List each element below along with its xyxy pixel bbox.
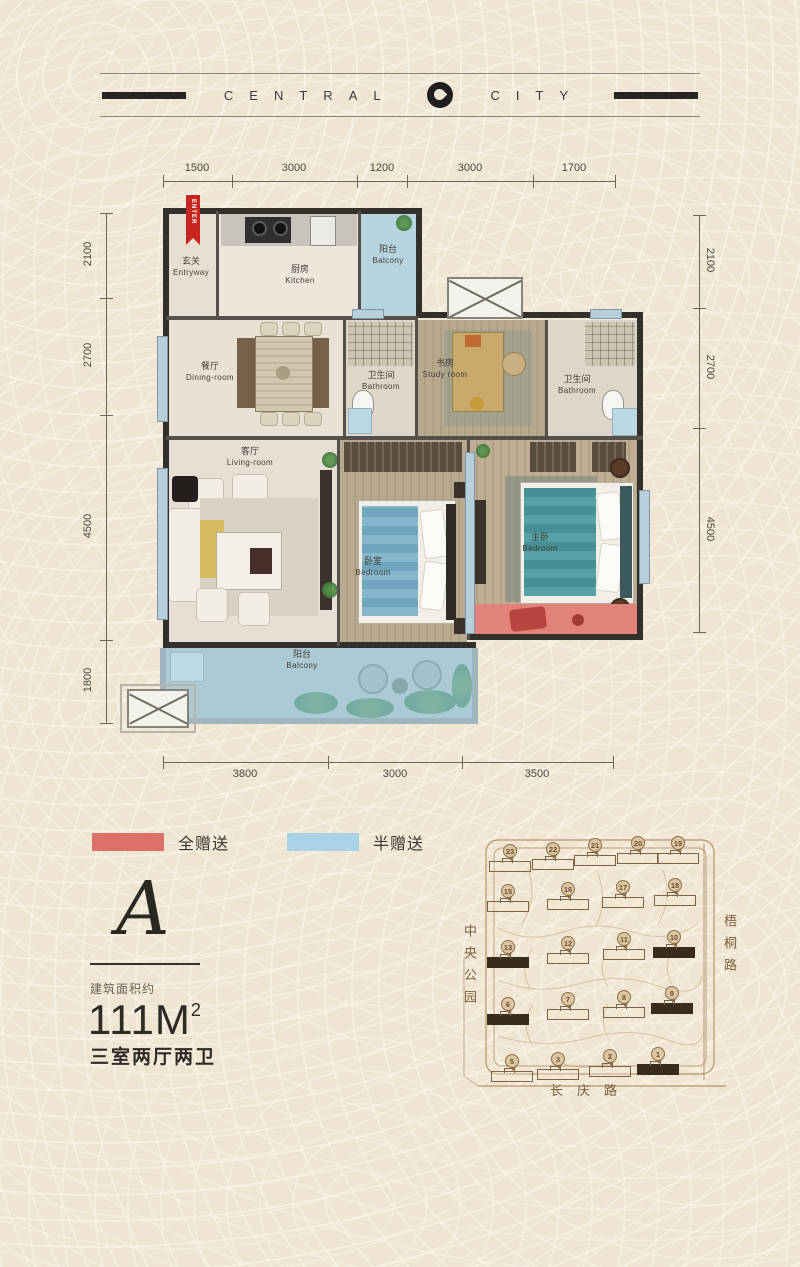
brand-word-right: CITY	[482, 88, 584, 103]
brand-header: CENTRAL CITY	[100, 73, 700, 117]
building-footprint-1	[637, 1064, 679, 1075]
building-footprint-16	[547, 899, 589, 910]
dimension-line-top	[163, 181, 615, 182]
plan-shape	[352, 309, 384, 319]
plan-shape	[252, 221, 267, 236]
dimension-tick	[100, 415, 113, 416]
building-marker-23: 23	[503, 844, 517, 858]
plan-shape	[545, 320, 548, 440]
plan-shape	[610, 458, 630, 478]
plan-shape	[470, 634, 643, 640]
plan-shape	[216, 532, 282, 590]
brand-word-left: CENTRAL	[216, 88, 397, 103]
header-bar-right	[614, 92, 698, 99]
building-marker-11: 11	[617, 932, 631, 946]
plan-shape	[415, 320, 418, 440]
plan-shape	[416, 208, 422, 318]
legend-label-half-gift: 半赠送	[373, 830, 424, 854]
plan-shape	[157, 468, 168, 620]
building-footprint-23	[489, 861, 531, 872]
dimension-tick	[693, 428, 706, 429]
dimension-label-left: 2700	[82, 325, 94, 385]
plan-shape	[273, 221, 288, 236]
plan-shape	[585, 322, 635, 366]
plan-shape	[465, 335, 481, 347]
dimension-tick	[100, 723, 113, 724]
plan-shape	[337, 440, 340, 646]
leaf-icon	[431, 87, 447, 103]
dimension-tick	[693, 632, 706, 633]
dimension-label-right: 2100	[704, 230, 716, 290]
legend-label-full-gift: 全赠送	[178, 830, 229, 854]
plan-shape	[310, 216, 336, 246]
plan-shape	[344, 442, 462, 472]
dimension-tick	[407, 175, 408, 188]
plan-shape	[238, 592, 270, 626]
plan-shape	[282, 412, 300, 426]
plan-shape	[474, 500, 486, 584]
building-marker-12: 12	[561, 936, 575, 950]
building-marker-20: 20	[631, 836, 645, 850]
building-footprint-3	[537, 1069, 579, 1080]
header-bar-left	[102, 92, 186, 99]
room-label-entryway: 玄关Entryway	[173, 256, 209, 278]
plan-shape	[637, 312, 643, 640]
dimension-tick	[100, 298, 113, 299]
bottom-road-label: 长庆路	[550, 1080, 631, 1099]
dimension-line-bottom	[163, 762, 613, 763]
building-marker-8: 8	[617, 990, 631, 1004]
dimension-tick	[328, 756, 329, 769]
dimension-label-top: 3000	[264, 162, 324, 174]
dimension-label-right: 4500	[704, 499, 716, 559]
building-footprint-22	[532, 859, 574, 870]
dimension-label-top: 1200	[352, 162, 412, 174]
building-marker-16: 16	[561, 882, 575, 896]
building-footprint-2	[589, 1066, 631, 1077]
dimension-label-right: 2700	[704, 337, 716, 397]
plan-shape	[572, 614, 584, 626]
building-marker-3: 3	[551, 1052, 565, 1066]
room-label-dining-room: 餐厅Dining-room	[186, 361, 234, 383]
plan-shape	[612, 408, 638, 436]
plan-shape	[348, 322, 413, 366]
room-label-bathroom: 卫生间Bathroom	[362, 370, 400, 392]
plan-shape	[470, 604, 637, 634]
plan-shape	[166, 436, 643, 440]
elevator-icon	[447, 277, 523, 319]
building-marker-19: 19	[671, 836, 685, 850]
plan-shape	[396, 215, 412, 231]
plan-shape	[348, 408, 372, 434]
dimension-tick	[693, 215, 706, 216]
building-footprint-6	[487, 1014, 529, 1025]
room-label-bathroom: 卫生间Bathroom	[558, 374, 596, 396]
dimension-label-bottom: 3500	[507, 768, 567, 780]
building-footprint-11	[603, 949, 645, 960]
dimension-line-left	[106, 213, 107, 723]
building-marker-1: 1	[651, 1047, 665, 1061]
plan-shape	[276, 366, 290, 380]
building-footprint-9	[651, 1003, 693, 1014]
plan-shape	[172, 476, 198, 502]
header-rule-bottom	[100, 116, 700, 117]
entry-ribbon: ENTER	[186, 195, 200, 245]
dimension-label-top: 1500	[167, 162, 227, 174]
room-label-balcony: 阳台Balcony	[286, 649, 317, 671]
dimension-tick	[693, 308, 706, 309]
room-label-bedroom: 卧室Bedroom	[355, 556, 390, 578]
plan-shape	[502, 352, 526, 376]
dimension-tick	[163, 756, 164, 769]
building-footprint-17	[602, 897, 644, 908]
plan-shape	[322, 452, 338, 468]
plan-shape	[476, 444, 490, 458]
park-label: 中央公园	[460, 924, 479, 1012]
area-superscript: 2	[191, 1000, 202, 1020]
plan-shape	[304, 322, 322, 336]
poster-page: CENTRAL CITY ENTER 玄关Entryway厨房Kitchen阳台…	[0, 0, 800, 1267]
dimension-tick	[462, 756, 463, 769]
area-prefix: 建筑面积约	[90, 980, 155, 997]
room-label-bedroom: 主卧Bedroom	[522, 532, 557, 554]
plan-shape	[260, 322, 278, 336]
plan-shape	[639, 490, 650, 584]
dimension-label-top: 1700	[544, 162, 604, 174]
building-footprint-19	[657, 853, 699, 864]
plan-shape	[446, 504, 456, 620]
building-marker-5: 5	[505, 1054, 519, 1068]
plan-shape	[470, 397, 484, 411]
dimension-label-left: 1800	[82, 650, 94, 710]
entry-ribbon-label: ENTER	[190, 199, 196, 224]
plan-shape	[322, 582, 338, 598]
building-marker-15: 15	[501, 884, 515, 898]
plan-shape	[163, 208, 422, 214]
dimension-label-left: 4500	[82, 496, 94, 556]
plan-shape	[472, 648, 478, 722]
building-marker-7: 7	[561, 992, 575, 1006]
building-marker-13: 13	[501, 940, 515, 954]
room-label-balcony: 阳台Balcony	[372, 244, 403, 266]
building-marker-6: 6	[501, 997, 515, 1011]
building-marker-17: 17	[616, 880, 630, 894]
unit-type-letter: A	[88, 872, 198, 946]
plan-shape	[196, 588, 228, 622]
dimension-label-left: 2100	[82, 224, 94, 284]
building-footprint-21	[574, 855, 616, 866]
plan-shape	[250, 548, 272, 574]
dimension-label-top: 3000	[440, 162, 500, 174]
plan-shape	[282, 322, 300, 336]
plan-shape	[160, 718, 478, 724]
building-footprint-8	[603, 1007, 645, 1018]
unit-layout-text: 三室两厅两卫	[90, 1042, 216, 1069]
site-map-buildings: 2322212019151617181312111067895321	[458, 828, 748, 1118]
brand-logo-icon	[427, 82, 453, 108]
plan-shape	[343, 320, 346, 440]
floor-plan: ENTER 玄关Entryway厨房Kitchen阳台Balcony餐厅Dini…	[160, 205, 645, 730]
building-marker-21: 21	[588, 838, 602, 852]
building-marker-10: 10	[667, 930, 681, 944]
gift-legend: 全赠送 半赠送	[92, 830, 482, 854]
dimension-tick	[100, 640, 113, 641]
plan-shape	[358, 211, 361, 319]
plan-shape	[260, 412, 278, 426]
right-road-label: 梧桐路	[720, 914, 739, 980]
legend-swatch-full-gift	[92, 833, 164, 851]
building-marker-9: 9	[665, 986, 679, 1000]
building-footprint-12	[547, 953, 589, 964]
legend-swatch-half-gift	[287, 833, 359, 851]
room-label-kitchen: 厨房Kitchen	[285, 264, 314, 286]
building-marker-2: 2	[603, 1049, 617, 1063]
dimension-tick	[615, 175, 616, 188]
plan-shape	[216, 211, 219, 319]
plan-shape	[530, 442, 576, 472]
building-footprint-7	[547, 1009, 589, 1020]
building-footprint-10	[653, 947, 695, 958]
dimension-line-right	[699, 215, 700, 632]
dimension-tick	[613, 756, 614, 769]
dimension-tick	[357, 175, 358, 188]
building-footprint-18	[654, 895, 696, 906]
plan-shape	[465, 452, 475, 634]
plan-shape	[166, 648, 472, 721]
plan-shape	[509, 606, 547, 632]
building-footprint-20	[617, 853, 659, 864]
unit-type-rule	[90, 963, 200, 965]
elevator-icon	[127, 689, 189, 728]
room-label-study-room: 书房Study room	[423, 358, 468, 380]
plan-shape	[304, 412, 322, 426]
site-map: 2322212019151617181312111067895321 中央公园 …	[458, 828, 748, 1118]
plan-shape	[157, 336, 168, 422]
dimension-tick	[100, 213, 113, 214]
dimension-label-bottom: 3000	[365, 768, 425, 780]
dimension-tick	[533, 175, 534, 188]
dimension-label-bottom: 3800	[215, 768, 275, 780]
dimension-tick	[232, 175, 233, 188]
area-value: 111M2	[88, 996, 202, 1044]
building-footprint-13	[487, 957, 529, 968]
dimension-tick	[163, 175, 164, 188]
building-marker-22: 22	[546, 842, 560, 856]
plan-shape	[163, 642, 476, 648]
plan-shape	[590, 309, 622, 319]
room-label-living-room: 客厅Living-room	[227, 446, 273, 468]
building-footprint-15	[487, 901, 529, 912]
building-marker-18: 18	[668, 878, 682, 892]
plan-shape	[620, 486, 632, 598]
building-footprint-5	[491, 1071, 533, 1082]
